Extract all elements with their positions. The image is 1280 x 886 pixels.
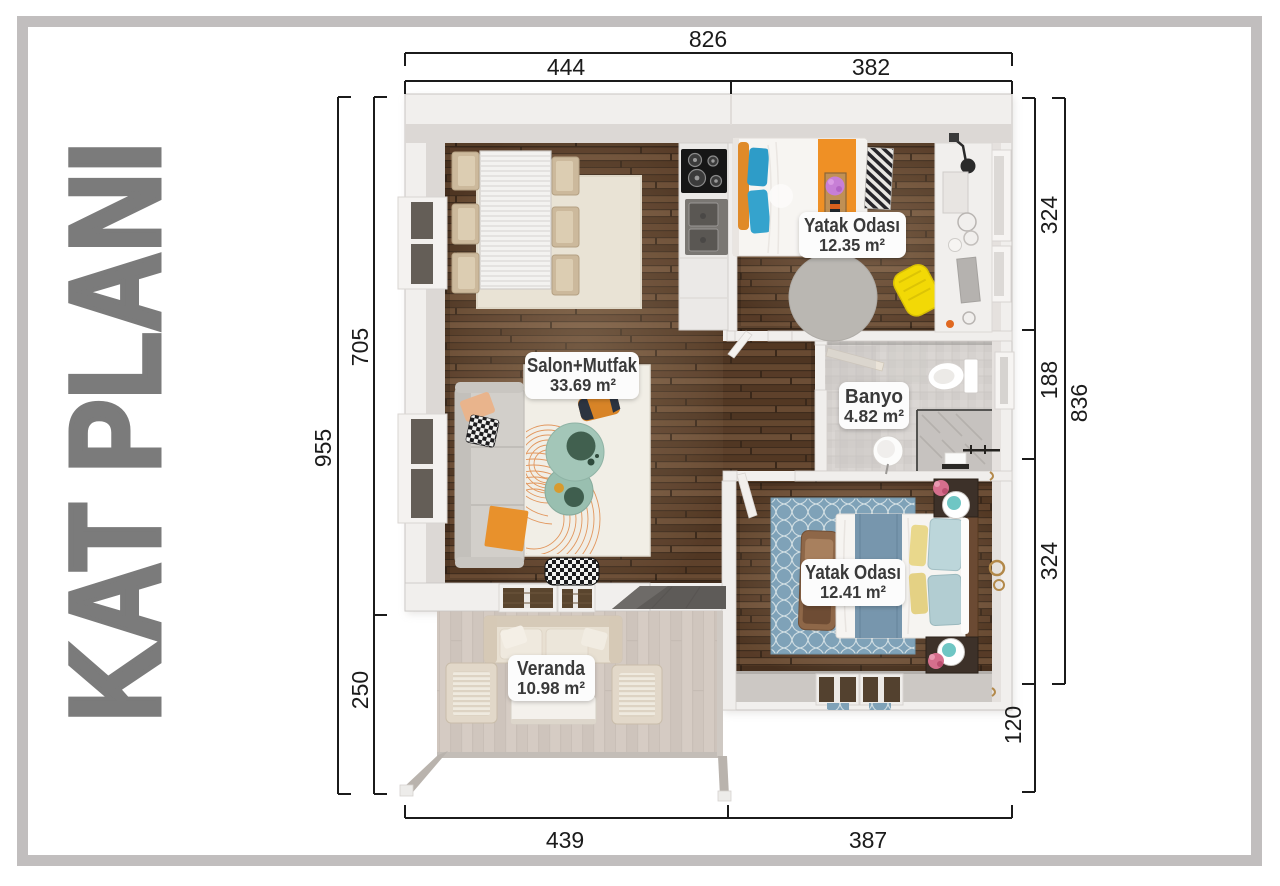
svg-text:444: 444 (547, 54, 586, 80)
svg-text:Salon+Mutfak: Salon+Mutfak (527, 355, 638, 377)
svg-text:12.35 m²: 12.35 m² (819, 235, 885, 255)
svg-text:705: 705 (347, 328, 373, 366)
svg-text:250: 250 (347, 671, 373, 709)
svg-text:Yatak Odası: Yatak Odası (805, 562, 901, 584)
svg-text:Veranda: Veranda (517, 658, 586, 680)
svg-text:188: 188 (1036, 361, 1062, 399)
svg-text:12.41 m²: 12.41 m² (820, 582, 886, 602)
svg-text:Yatak Odası: Yatak Odası (804, 215, 900, 237)
svg-text:33.69 m²: 33.69 m² (550, 375, 616, 395)
svg-text:439: 439 (546, 827, 584, 853)
svg-text:Banyo: Banyo (845, 386, 903, 408)
svg-text:955: 955 (310, 429, 336, 467)
svg-text:836: 836 (1066, 384, 1092, 422)
svg-text:382: 382 (852, 54, 890, 80)
svg-text:324: 324 (1036, 196, 1062, 235)
svg-text:387: 387 (849, 827, 887, 853)
svg-text:324: 324 (1036, 542, 1062, 581)
svg-text:826: 826 (689, 26, 727, 52)
svg-text:10.98 m²: 10.98 m² (517, 678, 585, 698)
svg-text:KAT PLANI: KAT PLANI (44, 142, 187, 722)
svg-text:120: 120 (1000, 706, 1026, 744)
svg-text:4.82 m²: 4.82 m² (844, 406, 904, 426)
